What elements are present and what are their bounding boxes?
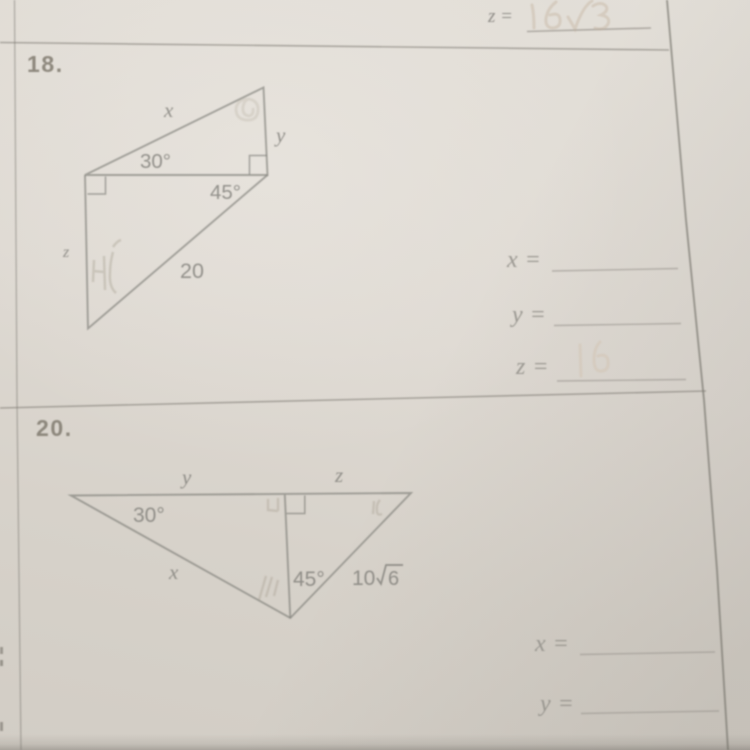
svg-text:x =: x = — [506, 247, 541, 273]
svg-text:z: z — [334, 463, 343, 487]
svg-text:30°: 30° — [140, 150, 171, 173]
svg-text:z =: z = — [515, 354, 549, 380]
svg-text:x: x — [163, 98, 174, 122]
svg-text:y: y — [180, 465, 192, 489]
svg-text:10: 10 — [352, 567, 375, 590]
svg-text:30°: 30° — [133, 504, 165, 527]
svg-text:x =: x = — [534, 631, 569, 657]
svg-text:x: x — [168, 560, 179, 584]
svg-text:z =: z = — [487, 6, 513, 27]
svg-text:18.: 18. — [27, 51, 64, 77]
svg-text:20.: 20. — [36, 415, 73, 441]
svg-text:y =: y = — [510, 302, 546, 328]
svg-text:y =: y = — [538, 691, 574, 717]
svg-text:45°: 45° — [293, 568, 325, 591]
svg-text:6: 6 — [388, 568, 399, 590]
svg-text:z: z — [62, 244, 70, 261]
svg-text:20: 20 — [180, 259, 204, 283]
svg-text:45°: 45° — [210, 181, 241, 204]
svg-text:y: y — [274, 123, 286, 147]
